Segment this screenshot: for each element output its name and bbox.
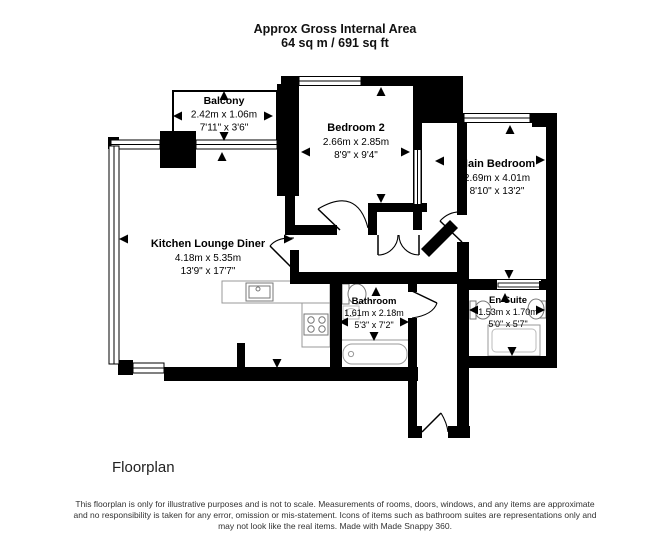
bedroom2-imperial: 8'9" x 9'4" [334,150,378,161]
arrow-up-icon [218,152,227,161]
ensuite-imperial: 5'0" x 5'7" [488,319,527,329]
main-bedroom-imperial: 8'10" x 13'2" [470,186,525,197]
floorplan-caption: Floorplan [112,459,175,476]
arrow-right-icon [264,112,273,121]
kitchen-imperial: 13'9" x 17'7" [181,266,236,277]
disclaimer-line-2: and no responsibility is taken for any e… [0,510,670,521]
floorplan-page: Approx Gross Internal Area 64 sq m / 691… [0,0,670,549]
double-door-cupboard [378,235,419,255]
arrow-up-icon [506,125,515,134]
main-bedroom-label: Main Bedroom [459,158,536,170]
arrow-up-icon [377,87,386,96]
kitchen-metric: 4.18m x 5.35m [175,253,241,264]
arrow-left-icon [301,148,310,157]
sliding-door [497,280,545,289]
balcony-label: Balcony [204,95,245,107]
disclaimer-line-1: This floorplan is only for illustrative … [0,499,670,510]
bathtub-icon [338,340,412,368]
bathroom-label: Bathroom [352,296,397,307]
window [133,363,164,373]
arrow-up-icon [372,287,381,296]
window [196,140,277,149]
floorplan-drawing: Balcony 2.42m x 1.06m 7'11" x 3'6" Bedro… [0,0,670,549]
balcony-metric: 2.42m x 1.06m [191,110,257,121]
main-bedroom-dimension-arrows [435,125,545,279]
wardrobe-slider [415,150,421,204]
bedroom2-metric: 2.66m x 2.85m [323,137,389,148]
window [299,77,361,86]
arrow-left-icon [119,235,128,244]
disclaimer-line-3: may not look like the real items. Made w… [0,521,670,532]
ensuite-metric: 1.53m x 1.70m [478,307,538,317]
ensuite-label: En Suite [489,295,527,306]
arrow-right-icon [401,148,410,157]
kitchen-label: Kitchen Lounge Diner [151,238,266,250]
arrow-down-icon [505,270,514,279]
bathroom-metric: 1.61m x 2.18m [344,308,404,318]
bedroom2-label: Bedroom 2 [327,122,384,134]
balcony-imperial: 7'11" x 3'6" [200,123,249,134]
arrow-down-icon [377,194,386,203]
door-swing-bathroom [412,291,437,318]
door-swing-entrance [422,413,448,432]
column [160,131,196,168]
window [109,146,119,364]
arrow-right-icon [284,235,293,244]
bathroom-imperial: 5'3" x 7'2" [354,320,393,330]
arrow-right-icon [536,156,545,165]
arrow-right-icon [400,318,409,327]
disclaimer: This floorplan is only for illustrative … [0,499,670,532]
arrow-left-icon [173,112,182,121]
window [464,114,530,123]
arrow-left-icon [435,157,444,166]
main-bedroom-metric: 2.69m x 4.01m [464,173,530,184]
arrow-down-icon [273,359,282,368]
